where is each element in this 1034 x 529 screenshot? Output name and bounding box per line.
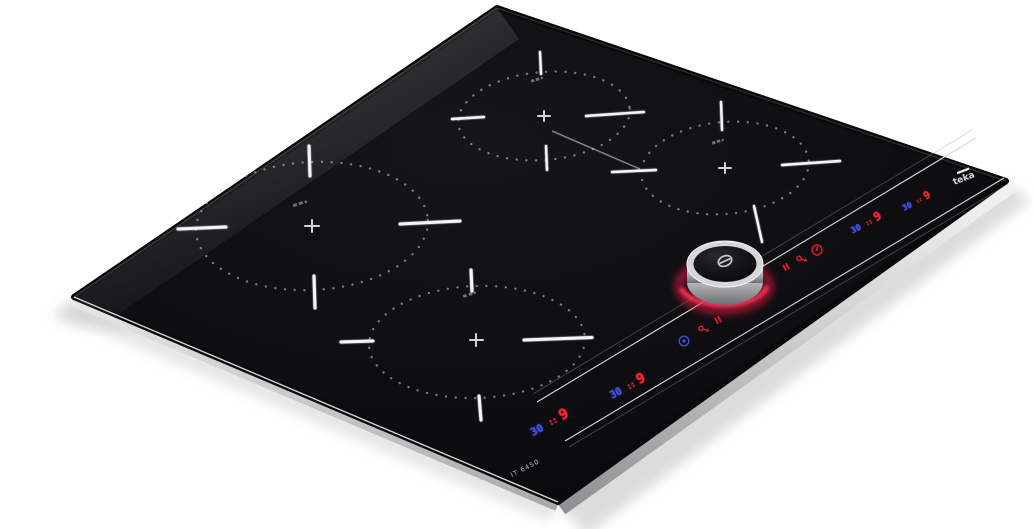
product-photo-induction-hob: IT 6450 30 :: 9 30 :: 9 <box>0 0 1034 529</box>
knob-top <box>694 246 757 282</box>
knob-body <box>687 241 763 305</box>
control-knob[interactable] <box>679 241 769 310</box>
